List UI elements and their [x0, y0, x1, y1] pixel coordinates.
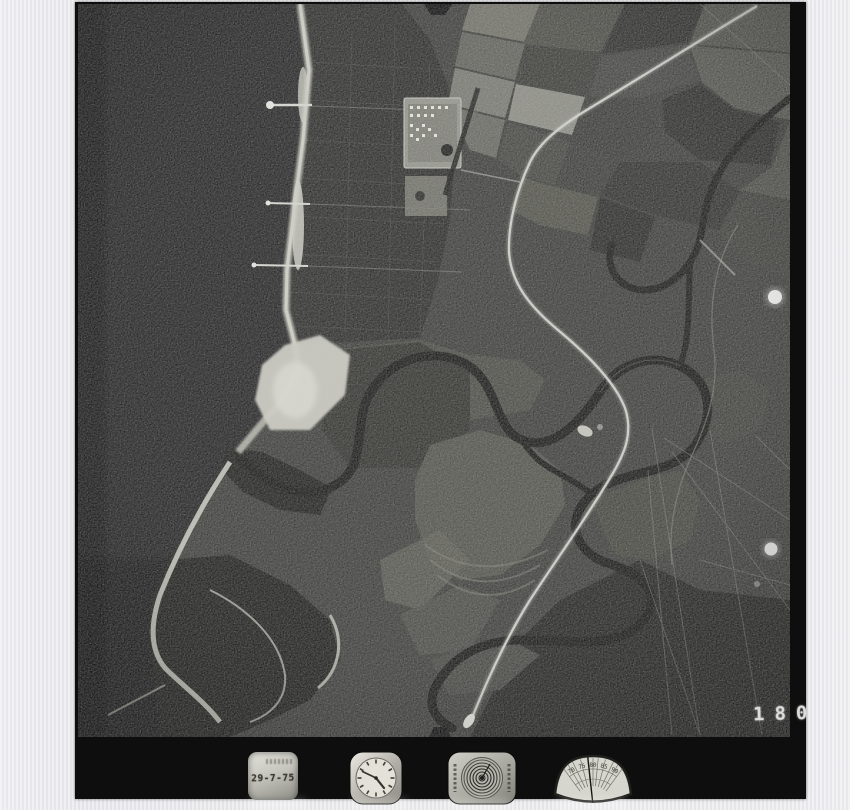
date-stamp-header-smudge: [266, 759, 293, 764]
film-grain: [78, 4, 790, 737]
date-stamp-date: 29-7-75: [248, 773, 298, 785]
light-leak: [556, 799, 626, 810]
light-leak: [450, 799, 510, 810]
scanner-background: 180 29-7-75: [0, 0, 850, 810]
frame-number: 180: [753, 701, 850, 726]
clock-dial: [349, 751, 403, 805]
film-frame: 180 29-7-75: [75, 2, 806, 799]
level-gauge: 70 75 80 85 90: [551, 749, 635, 803]
date-stamp: 29-7-75: [248, 752, 298, 800]
svg-text:80: 80: [589, 762, 597, 769]
altimeter-dial: [447, 751, 517, 805]
aerial-photo: [78, 4, 790, 737]
dust-speck: [505, 775, 507, 777]
light-leak: [250, 799, 305, 810]
light-leak: [352, 799, 407, 810]
